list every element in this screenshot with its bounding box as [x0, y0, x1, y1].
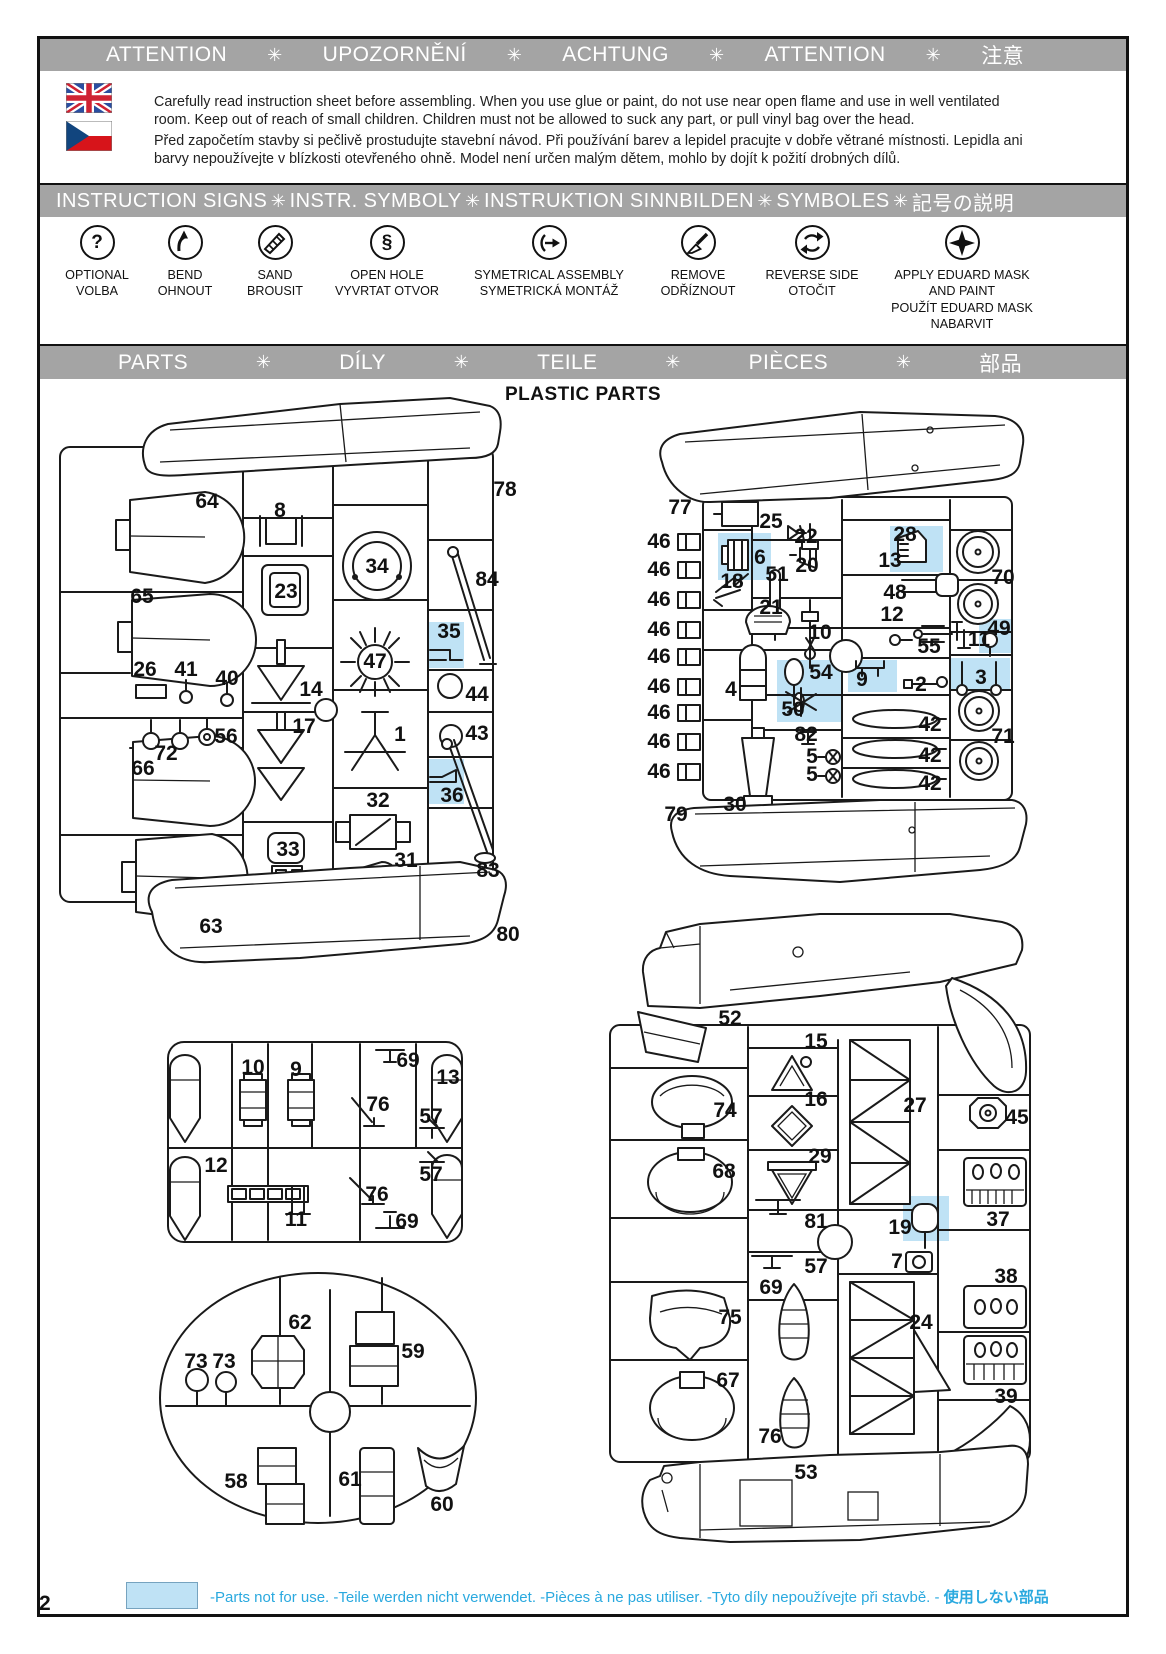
sprue-c-diagram — [160, 1020, 480, 1255]
sprue-b-diagram — [615, 390, 1035, 910]
sprue-a-bottom-wing — [149, 862, 506, 962]
sprue-e-fuselage-top — [643, 914, 1026, 1092]
sprue-b-bottom-wing — [671, 800, 1027, 882]
sprue-c-parts — [170, 1050, 462, 1240]
sprue-b-top-wing — [660, 412, 1023, 502]
sprue-c-frame — [168, 1042, 462, 1242]
sprue-a-top-wing — [143, 398, 501, 476]
sprue-d-diagram — [150, 1255, 490, 1545]
sprue-e-diagram — [598, 912, 1043, 1567]
instruction-sheet-page: ATTENTION ✳ UPOZORNĚNÍ ✳ ACHTUNG ✳ ATTEN… — [0, 0, 1166, 1654]
sprue-a-diagram — [50, 390, 525, 985]
